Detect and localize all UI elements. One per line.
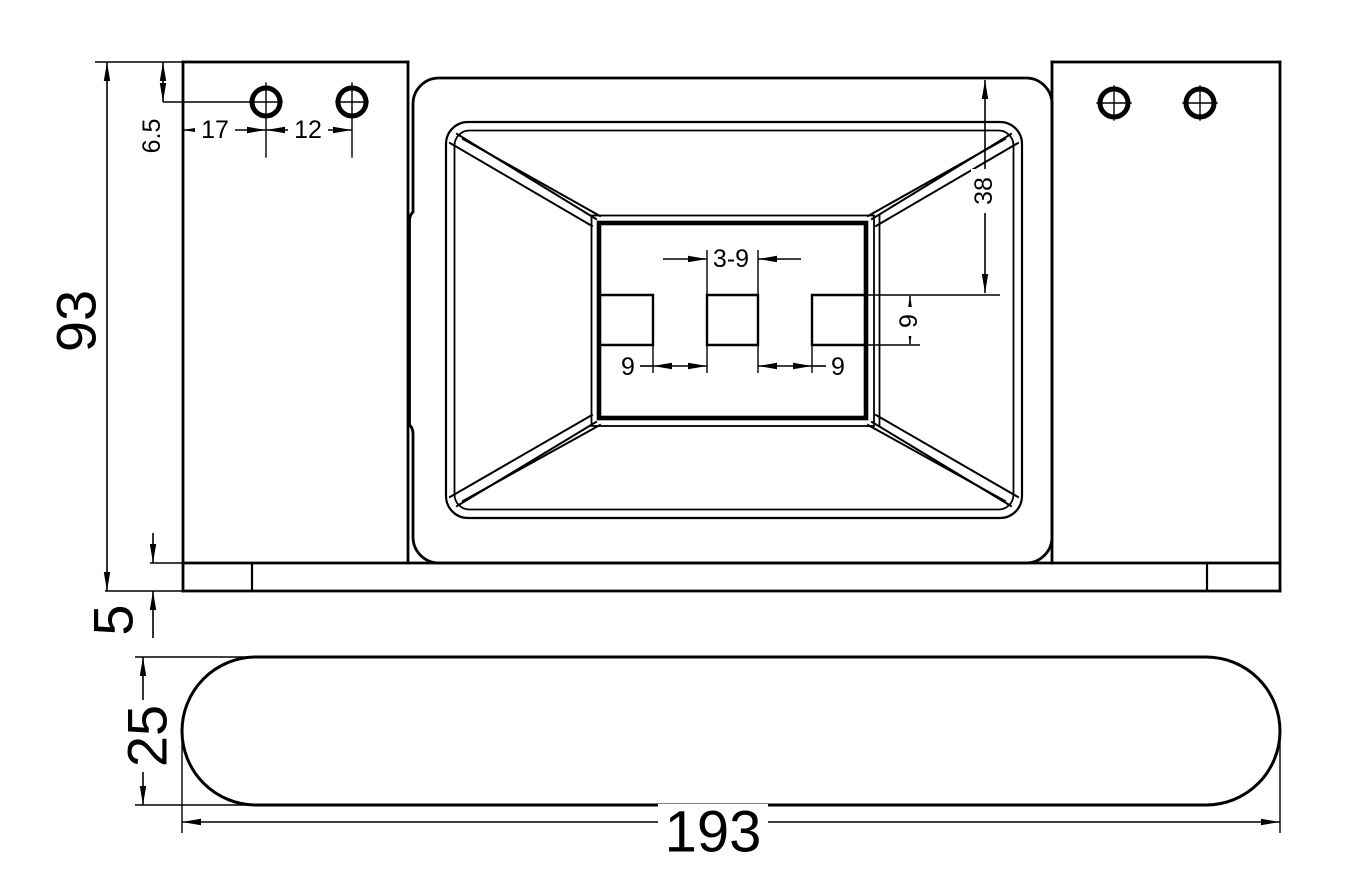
top-view: [183, 62, 1280, 591]
slot-tab-right: [812, 295, 866, 345]
dim-38-label: 38: [970, 177, 998, 205]
side-view: [182, 657, 1280, 805]
dim-17-label: 17: [201, 116, 229, 144]
dim-193-label: 193: [665, 800, 762, 865]
slot-tab-left: [599, 295, 653, 345]
dim-9-vert-label: 9: [895, 314, 923, 328]
dim-9-left-label: 9: [621, 353, 635, 381]
dim-12-label: 12: [294, 116, 322, 144]
center-boss-outline: [410, 78, 1053, 563]
dim-93-label: 93: [45, 290, 108, 352]
pocket-rim-inner: [455, 131, 1014, 510]
slot-tab-middle: [707, 295, 758, 345]
dim-6-5-label: 6.5: [138, 119, 166, 154]
dim-5-label: 5: [82, 604, 145, 635]
dim-3-9-label: 3-9: [713, 245, 749, 273]
extension-lines: [95, 62, 1280, 833]
hole-centerlines: [250, 83, 1217, 157]
dim-25-label: 25: [116, 705, 179, 767]
dim-9-right-label: 9: [831, 353, 845, 381]
drawing-canvas: 93 6.5 17 12 38 3-9 9 9 9 5 25 193: [0, 0, 1354, 872]
dimension-labels: 93 6.5 17 12 38 3-9 9 9 9 5 25 193: [45, 116, 999, 865]
slot-tabs: [599, 295, 866, 345]
pocket-rim-outer: [446, 122, 1022, 518]
right-mounting-plate: [1052, 62, 1280, 591]
dimension-lines: [107, 62, 1280, 822]
dimensions: [95, 62, 1280, 858]
pocket-chamfer-lines: [450, 134, 1018, 506]
side-view-outline: [182, 657, 1280, 805]
mounting-holes: [252, 88, 1214, 117]
bottom-step-edges: [183, 563, 1280, 591]
